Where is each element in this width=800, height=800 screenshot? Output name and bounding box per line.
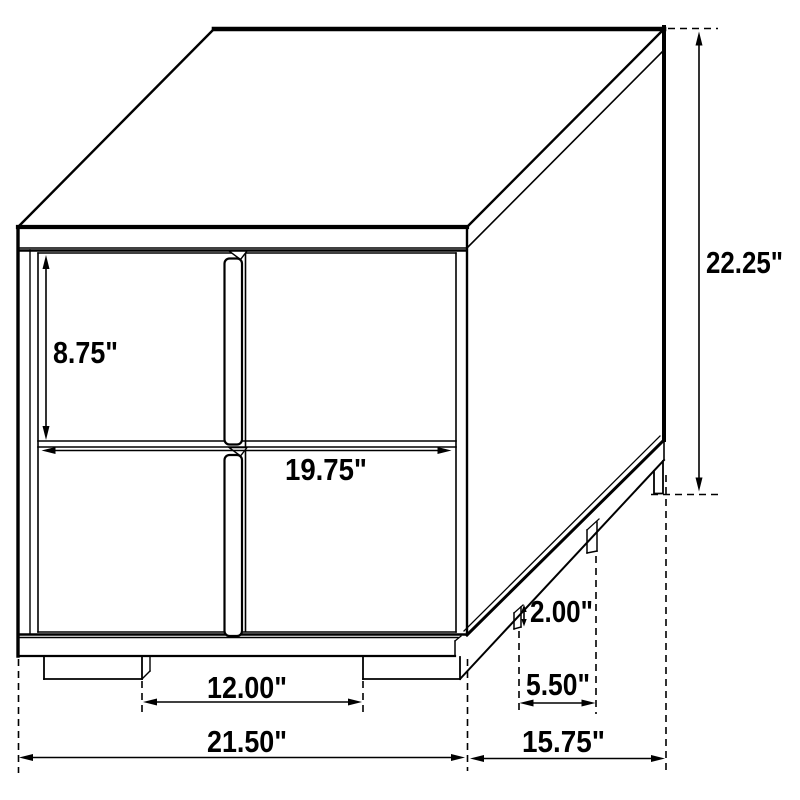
lower-drawer-handle [225,448,248,637]
dimension-annotations: 8.75" 19.75" 22.25" 2.00" 5.50" 12.00" 2… [19,29,784,774]
arrowheads [19,32,703,763]
drawer-divider [38,441,456,447]
base-plinth [18,636,461,656]
dim-label-side-leg-spacing: 5.50" [526,667,590,702]
dim-label-drawer-front-width: 19.75" [285,452,367,487]
nightstand-dimension-diagram: 8.75" 19.75" 22.25" 2.00" 5.50" 12.00" 2… [0,0,800,800]
dim-label-front-leg-spacing: 12.00" [207,670,287,705]
dim-label-overall-width: 21.50" [207,724,287,759]
front-right-leg [363,657,460,679]
side-face [460,27,664,679]
dim-label-overall-height: 22.25" [706,245,783,280]
front-left-leg [44,657,150,679]
upper-drawer-handle [225,251,248,446]
dimension-lines [26,39,699,759]
dimension-diagram-canvas: 8.75" 19.75" 22.25" 2.00" 5.50" 12.00" 2… [0,0,800,800]
extension-lines [19,29,719,774]
dim-label-drawer-front-height: 8.75" [53,335,118,370]
dim-label-overall-depth: 15.75" [522,724,605,759]
dim-label-leg-height: 2.00" [530,594,593,629]
